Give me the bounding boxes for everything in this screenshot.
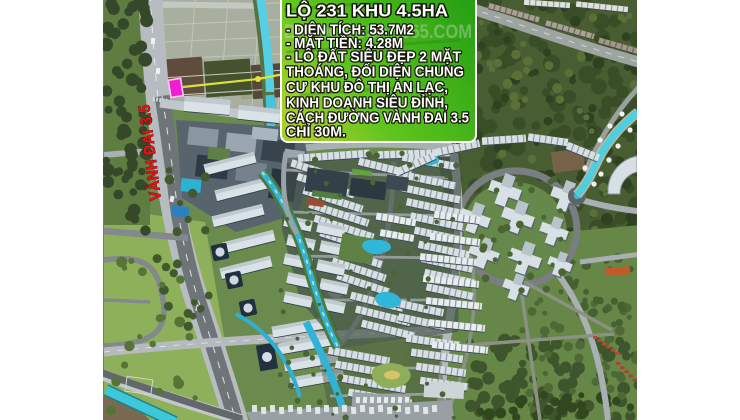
svg-text:KINH DOANH SIÊU ĐỈNH,: KINH DOANH SIÊU ĐỈNH, [286, 94, 448, 112]
svg-text:LỘ 231 KHU 4.5HA: LỘ 231 KHU 4.5HA [286, 1, 448, 21]
svg-text:CƯ KHU ĐÔ THỊ AN LẠC,: CƯ KHU ĐÔ THỊ AN LẠC, [286, 78, 448, 96]
svg-text:- LÔ ĐẤT SIÊU ĐẸP 2 MẶT: - LÔ ĐẤT SIÊU ĐẸP 2 MẶT [286, 48, 461, 66]
svg-text:CHỈ 30M.: CHỈ 30M. [286, 124, 346, 141]
svg-text:THOÁNG, ĐỐI DIỆN CHUNG: THOÁNG, ĐỐI DIỆN CHUNG [286, 63, 464, 81]
